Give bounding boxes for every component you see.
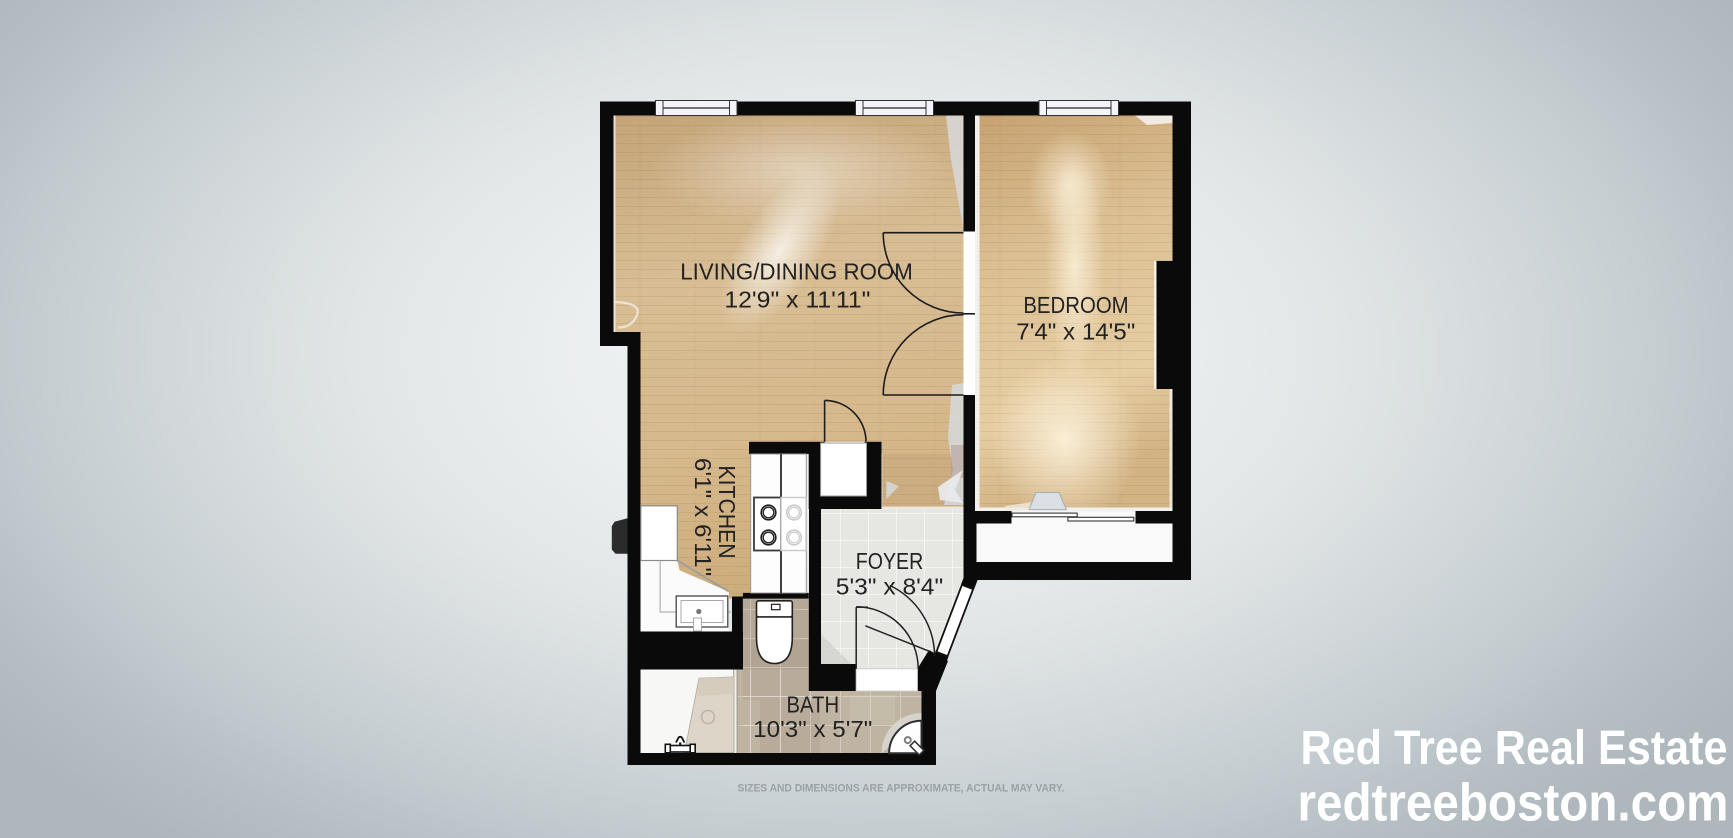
svg-text:SIZES AND DIMENSIONS ARE APPRO: SIZES AND DIMENSIONS ARE APPROXIMATE, AC…: [738, 783, 1065, 795]
svg-text:7'4" x 14'5": 7'4" x 14'5": [1016, 319, 1135, 345]
svg-text:FOYER: FOYER: [856, 548, 923, 574]
svg-text:LIVING/DINING ROOM: LIVING/DINING ROOM: [680, 259, 913, 285]
svg-text:Red Tree Real Estate: Red Tree Real Estate: [1301, 722, 1728, 775]
svg-text:BEDROOM: BEDROOM: [1023, 292, 1128, 318]
svg-text:BATH: BATH: [787, 691, 840, 717]
svg-text:10'3" x 5'7": 10'3" x 5'7": [753, 716, 872, 742]
svg-text:5'3" x 8'4": 5'3" x 8'4": [836, 574, 943, 600]
svg-text:12'9" x 11'11": 12'9" x 11'11": [724, 287, 870, 313]
svg-text:6'1" x 6'11": 6'1" x 6'11": [690, 458, 716, 576]
svg-text:redtreeboston.com: redtreeboston.com: [1298, 774, 1729, 833]
svg-text:KITCHEN: KITCHEN: [714, 465, 740, 558]
